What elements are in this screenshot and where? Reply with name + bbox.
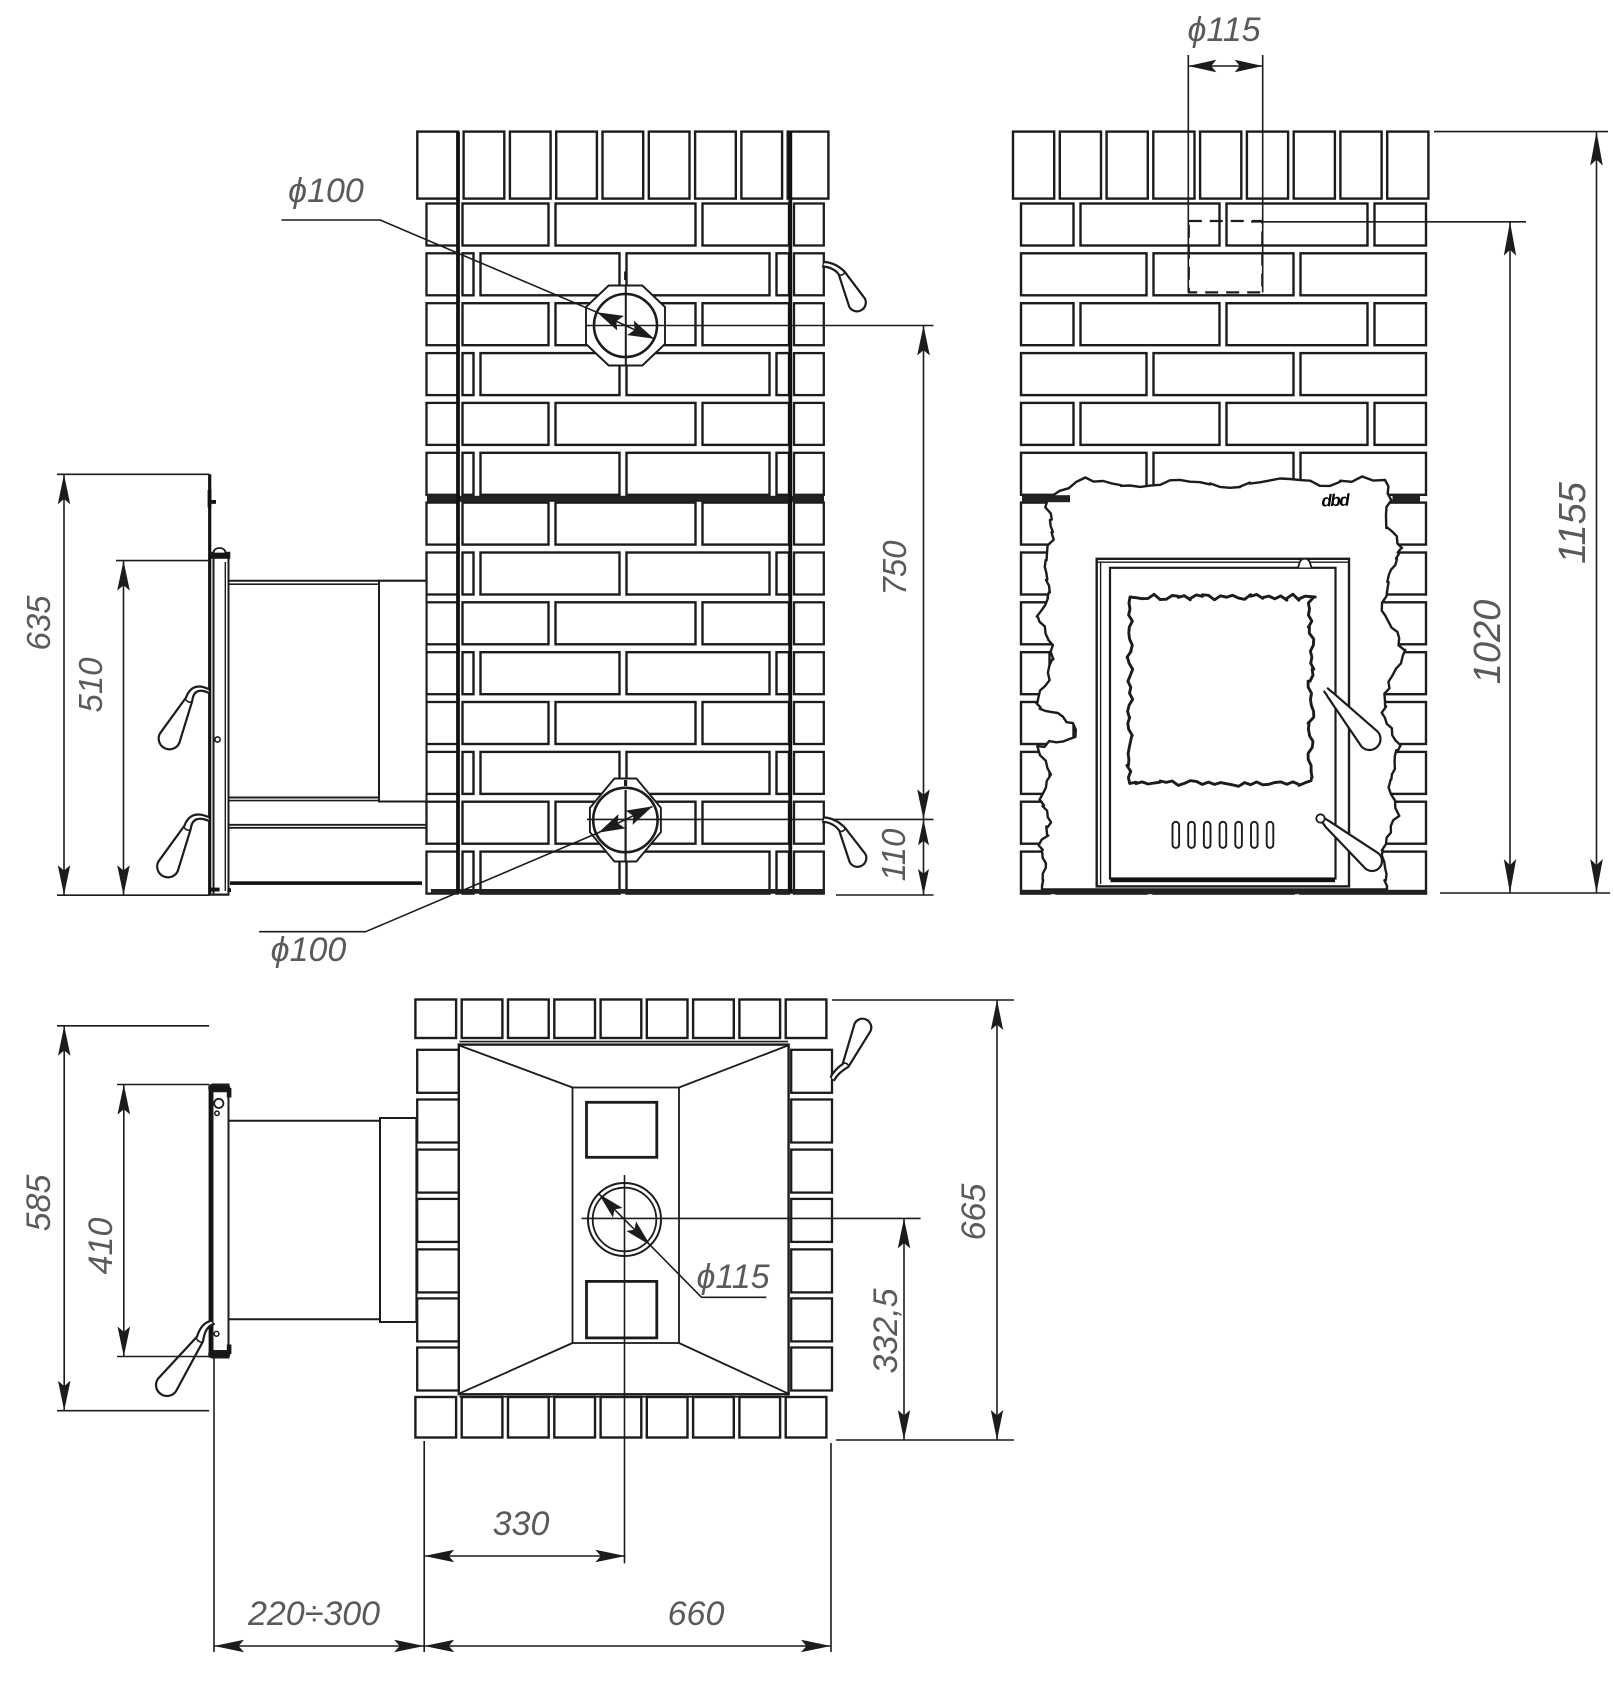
svg-text:110: 110 [875,828,912,881]
svg-text:ϕ100: ϕ100 [271,931,347,969]
svg-text:330: 330 [493,1505,550,1543]
svg-text:750: 750 [876,540,913,596]
svg-text:1155: 1155 [1552,481,1594,564]
svg-text:ϕ115: ϕ115 [1187,11,1260,49]
svg-text:220÷300: 220÷300 [247,1595,380,1633]
svg-text:510: 510 [72,657,109,713]
svg-text:1020: 1020 [1467,600,1509,685]
svg-text:ϕ100: ϕ100 [288,172,364,210]
svg-text:410: 410 [82,1218,120,1275]
svg-text:665: 665 [955,1184,993,1241]
svg-text:660: 660 [668,1595,725,1633]
svg-text:585: 585 [20,1175,58,1232]
svg-text:dbd: dbd [1321,490,1350,510]
svg-text:635: 635 [20,595,57,651]
svg-text:332,5: 332,5 [867,1288,905,1373]
svg-text:ϕ115: ϕ115 [696,1258,769,1296]
